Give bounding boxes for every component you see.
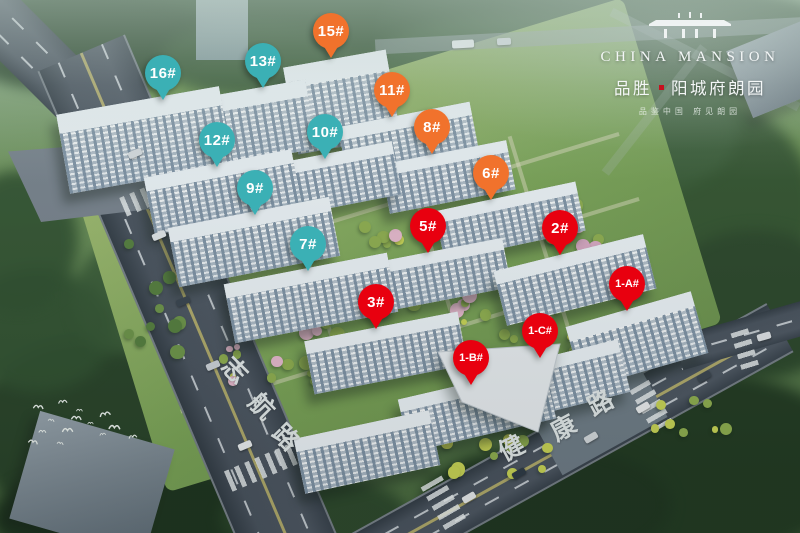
pin-tail <box>255 75 271 88</box>
pin-tail <box>552 242 568 255</box>
pin-label: 1-C# <box>522 313 558 349</box>
brand-cn-left: 品胜 <box>614 75 652 99</box>
pin-label: 6# <box>473 155 509 191</box>
pin-label: 11# <box>374 72 410 108</box>
pin-label: 7# <box>290 226 326 262</box>
pin-2: 2# <box>542 210 578 255</box>
pin-11: 11# <box>374 72 410 117</box>
pin-1-C: 1-C# <box>522 313 558 358</box>
pin-16: 16# <box>145 55 181 100</box>
pin-1-B: 1-B# <box>453 340 489 385</box>
pin-3: 3# <box>358 284 394 329</box>
pin-tail <box>317 146 333 159</box>
pin-tail <box>532 345 548 358</box>
bird-icon <box>57 390 69 410</box>
pin-8: 8# <box>414 109 450 154</box>
pin-tail <box>420 240 436 253</box>
pin-tail <box>323 45 339 58</box>
pin-label: 1-B# <box>453 340 489 376</box>
pin-1-A: 1-A# <box>609 266 645 311</box>
pin-tail <box>463 372 479 385</box>
bird-icon <box>32 394 45 417</box>
pin-5: 5# <box>410 208 446 253</box>
pin-12: 12# <box>199 122 235 167</box>
pin-tail <box>155 87 171 100</box>
pin-label: 12# <box>199 122 235 158</box>
pin-label: 1-A# <box>609 266 645 302</box>
pin-9: 9# <box>237 170 273 215</box>
pin-tail <box>300 258 316 271</box>
brand-tagline: 品鉴中国 府见朗园 <box>578 106 800 117</box>
pin-label: 5# <box>410 208 446 244</box>
pin-13: 13# <box>245 43 281 88</box>
brand-name-en: CHINA MANSION <box>578 49 800 66</box>
pin-tail <box>483 187 499 200</box>
bird-icon <box>87 416 94 429</box>
pin-tail <box>368 316 384 329</box>
bird-icon <box>70 405 82 428</box>
car <box>497 38 511 46</box>
pin-6: 6# <box>473 155 509 200</box>
pin-label: 15# <box>313 13 349 49</box>
pin-tail <box>424 141 440 154</box>
pin-label: 3# <box>358 284 394 320</box>
pin-label: 2# <box>542 210 578 246</box>
brand-cn-right: 阳城府朗园 <box>671 75 766 99</box>
pin-tail <box>619 298 635 311</box>
pin-label: 10# <box>307 114 343 150</box>
brand-dot-icon <box>659 85 664 90</box>
bus <box>452 39 474 48</box>
pin-label: 9# <box>237 170 273 206</box>
pin-label: 16# <box>145 55 181 91</box>
pin-tail <box>384 104 400 117</box>
pin-7: 7# <box>290 226 326 271</box>
pin-10: 10# <box>307 114 343 159</box>
pin-15: 15# <box>313 13 349 58</box>
developer-logo: CHINA MANSION 品胜 阳城府朗园 品鉴中国 府见朗园 <box>578 10 800 117</box>
pin-tail <box>247 202 263 215</box>
aerial-site-rendering[interactable]: CHINA MANSION 品胜 阳城府朗园 品鉴中国 府见朗园 志航路健康路1… <box>0 0 800 533</box>
brand-name-cn: 品胜 阳城府朗园 <box>578 75 800 99</box>
gate-icon <box>648 10 732 40</box>
pin-tail <box>209 154 225 167</box>
pin-label: 13# <box>245 43 281 79</box>
pin-label: 8# <box>414 109 450 145</box>
